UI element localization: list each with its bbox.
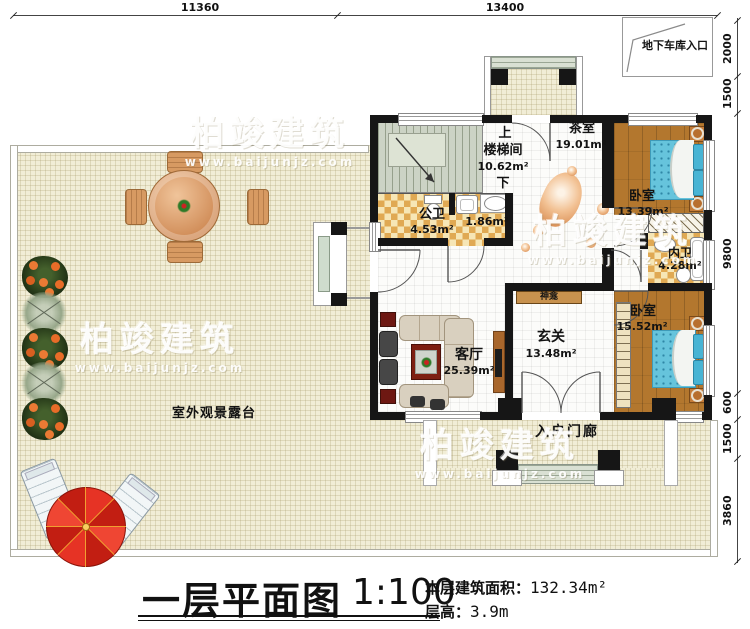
garage-entrance-label: 地下车库入口 [639,40,711,52]
wall [370,292,378,412]
porch-top-jamb-left [484,56,491,118]
bay-window-column [331,293,347,306]
garage-entrance-box: 地下车库入口 [622,17,713,77]
floor-area-row: 本层建筑面积：132.34m² [425,577,607,598]
door-public-bath [448,246,484,282]
wall [505,291,513,412]
bed2-blanket [672,330,695,386]
wall [370,412,405,420]
stair-down-label: 下 [490,177,516,191]
wall [600,412,660,420]
wall [614,115,628,123]
floor-height-row: 层高：3.9m [425,601,509,622]
porch-column-base [492,470,522,486]
washbasin-square-inner [460,199,474,211]
wall [704,210,712,240]
side-table [380,389,396,404]
inner-bath-label: 内卫 [654,247,706,260]
porch-column [598,450,620,470]
door-terrace [378,250,420,292]
stairwell-area: 10.62m² [465,161,541,173]
patio-chair-east [247,189,269,225]
entrance-porch-label: 入户门廊 [502,425,632,440]
nightstand-lamp [691,127,704,140]
foyer-area: 13.48m² [520,348,582,360]
floor-height-label: 层高： [425,603,470,621]
window [398,113,484,126]
porch-side-right [664,420,678,486]
patio-chair-west [125,189,147,225]
stairwell-label: 楼梯间 [465,144,541,158]
entrance-double-door [522,372,600,413]
shrine-label: 神龛 [517,293,581,303]
porch-column [496,450,518,470]
porch-column [491,69,508,85]
dim-right-4: 600 [721,386,734,420]
orange-shrub [22,398,68,440]
decor-stone [533,225,544,236]
window [703,140,715,212]
dim-top-right: 13400 [455,1,555,14]
wall [704,115,712,140]
public-bath-label: 公卫 [404,208,460,222]
small-bath-area: 1.86m² [460,216,514,228]
side-table [380,312,396,327]
entrance-column [652,398,676,420]
foyer-label: 玄关 [522,330,580,345]
dim-right-6: 3860 [721,484,734,538]
dim-right-3: 9800 [721,228,734,280]
footstool [410,396,425,407]
tea-room-label: 茶室 [556,122,608,136]
porch-column [559,69,576,85]
decor-stone [567,166,577,176]
porch-side-left [423,420,437,486]
bedroom1-area: 13.39m² [612,206,674,218]
dim-right-2: 1500 [721,72,734,116]
wall [505,283,614,291]
dim-right-5: 1500 [721,417,734,461]
terrace-label: 室外观景露台 [148,407,280,421]
inner-bath-area: 4.28m² [652,260,708,272]
armchair [379,331,398,357]
stair-up-label: 上 [492,127,518,141]
living-room-area: 25.39m² [438,365,500,377]
dimension-line-top [13,15,718,16]
bedroom2-area: 15.52m² [610,321,674,333]
window [703,325,715,397]
bay-window-sill [347,227,370,229]
footstool [430,399,445,410]
terrace-parapet-right [710,420,718,557]
decor-stone [521,243,530,252]
shrine-shelf: 神龛 [516,291,582,304]
bedroom2-label: 卧室 [615,305,671,319]
wall [482,115,512,123]
wall [378,238,448,246]
bay-window-sill [347,297,370,299]
porch-steps [518,464,598,484]
decor-stone [586,238,596,248]
patio-chair-south [167,241,203,263]
bed1-blanket [670,140,694,198]
bay-window-glass [318,236,330,292]
wall [648,283,712,291]
window [369,222,381,252]
wall [702,412,712,420]
dim-tick [714,12,721,19]
floor-height-value: 3.9m [470,602,509,621]
bay-window-column [331,222,347,235]
armchair [379,359,398,385]
dim-tick [734,558,741,565]
porch-top-jamb-right [576,56,583,118]
floor-area-value: 132.34m² [530,578,607,597]
umbrella-cap [82,523,90,531]
living-room-label: 客厅 [440,348,498,363]
title-underline-2 [138,620,440,621]
terrace-parapet-left [10,145,18,557]
wall [484,238,505,246]
public-bath-area: 4.53m² [404,224,460,236]
dim-top-left: 11360 [150,1,250,14]
title-underline-1 [138,615,440,617]
wall [704,288,712,325]
wall [370,115,378,222]
table-plant [421,357,432,368]
washbasin-oval [484,196,507,211]
window [628,113,698,126]
dimension-line-right [737,18,738,563]
porch-column-base [594,470,624,486]
tea-room-area: 19.01m² [550,139,612,151]
floor-plan-canvas: 11360 13400 2000 1500 9800 600 1500 3860… [0,0,750,629]
porch-top-steps [491,56,576,69]
bedroom1-label: 卧室 [614,190,670,204]
stair-direction-arrow [392,134,442,190]
patio-table-plant [177,199,191,213]
dim-right-1: 2000 [721,24,734,74]
door-inner-bath [611,250,641,282]
floor-area-label: 本层建筑面积： [425,579,530,597]
